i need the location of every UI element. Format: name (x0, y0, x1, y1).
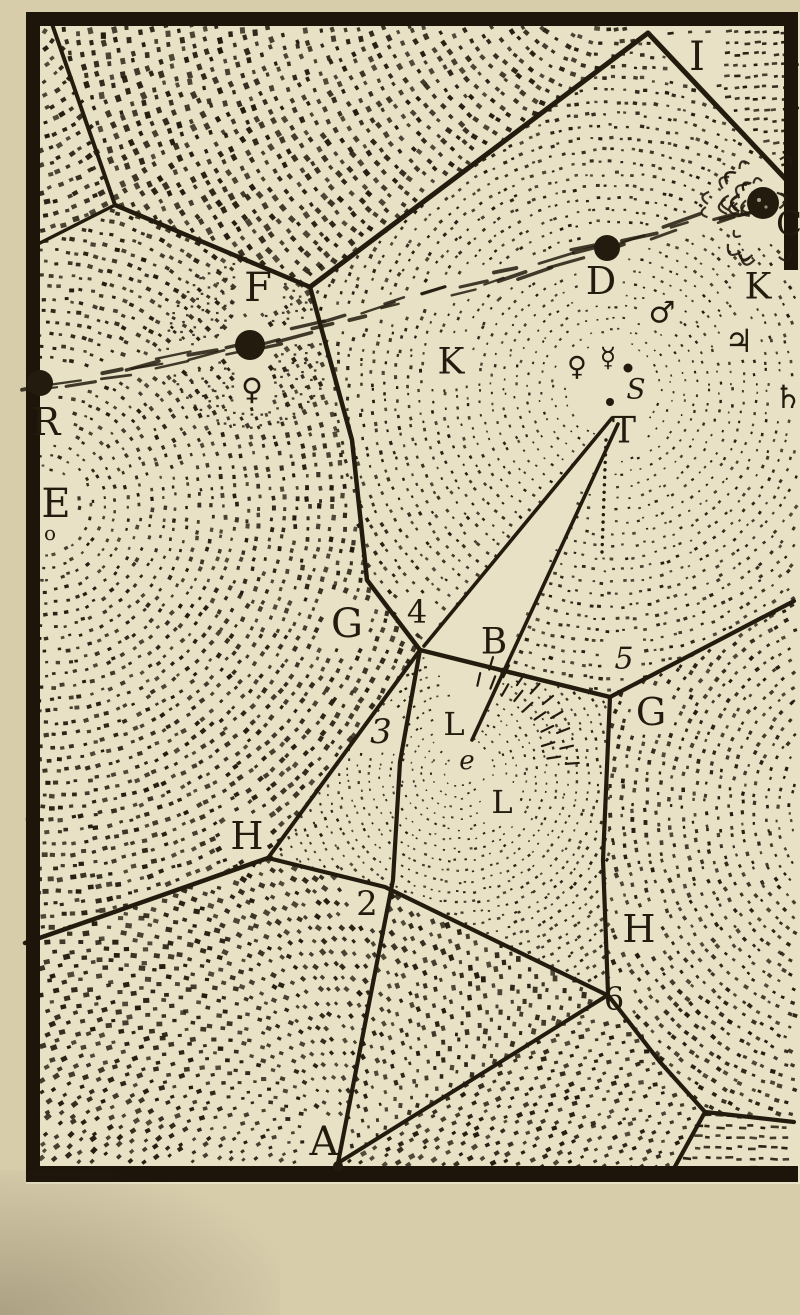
diagram-label-♂: ♂ (649, 296, 676, 331)
diagram-label-☿: ☿ (600, 343, 617, 374)
diagram-label-A: A (309, 1119, 340, 1165)
diagram-label-R: R (32, 400, 62, 444)
frame-left (26, 12, 40, 1182)
star-dot (235, 330, 265, 360)
diagram-label-K: K (745, 267, 773, 308)
comet-head (747, 187, 779, 219)
diagram-label-o: o (44, 521, 56, 545)
diagram-label-S: S (626, 373, 645, 406)
diagram-label-6: 6 (604, 980, 624, 1018)
diagram-label-4: 4 (407, 593, 427, 631)
small-dot (624, 364, 633, 373)
diagram-label-I: I (689, 34, 705, 80)
descartes-vortex-engraving: ICKDFKREo♀♀☿S♂♃♄TG4B5G3LeLH2H6A (0, 0, 800, 1315)
diagram-label-T: T (612, 411, 636, 452)
diagram-label-5: 5 (614, 642, 633, 677)
page-curl-shadow (0, 1170, 280, 1315)
diagram-label-D: D (586, 259, 616, 303)
diagram-label-K: K (438, 342, 466, 383)
diagram-label-G: G (331, 601, 363, 647)
diagram-label-♀: ♀ (241, 373, 263, 408)
diagram-label-H: H (230, 814, 263, 858)
diagram-label-H: H (622, 907, 655, 951)
diagram-label-B: B (481, 622, 507, 663)
star-dot (27, 370, 53, 396)
diagram-label-♀: ♀ (567, 352, 587, 383)
diagram-label-e: e (459, 746, 474, 776)
diagram-label-2: 2 (356, 884, 378, 924)
small-dot (606, 398, 614, 406)
diagram-label-L: L (443, 705, 464, 743)
diagram-label-L: L (491, 783, 512, 821)
diagram-label-G: G (636, 690, 666, 734)
diagram-label-C: C (776, 204, 800, 244)
diagram-label-F: F (244, 265, 272, 311)
diagram-label-3: 3 (370, 712, 392, 752)
frame-top (26, 12, 798, 26)
diagram-label-♄: ♄ (774, 378, 800, 416)
diagram-label-♃: ♃ (725, 322, 754, 360)
star-dot (594, 235, 620, 261)
book-page: ICKDFKREo♀♀☿S♂♃♄TG4B5G3LeLH2H6A (0, 0, 800, 1315)
